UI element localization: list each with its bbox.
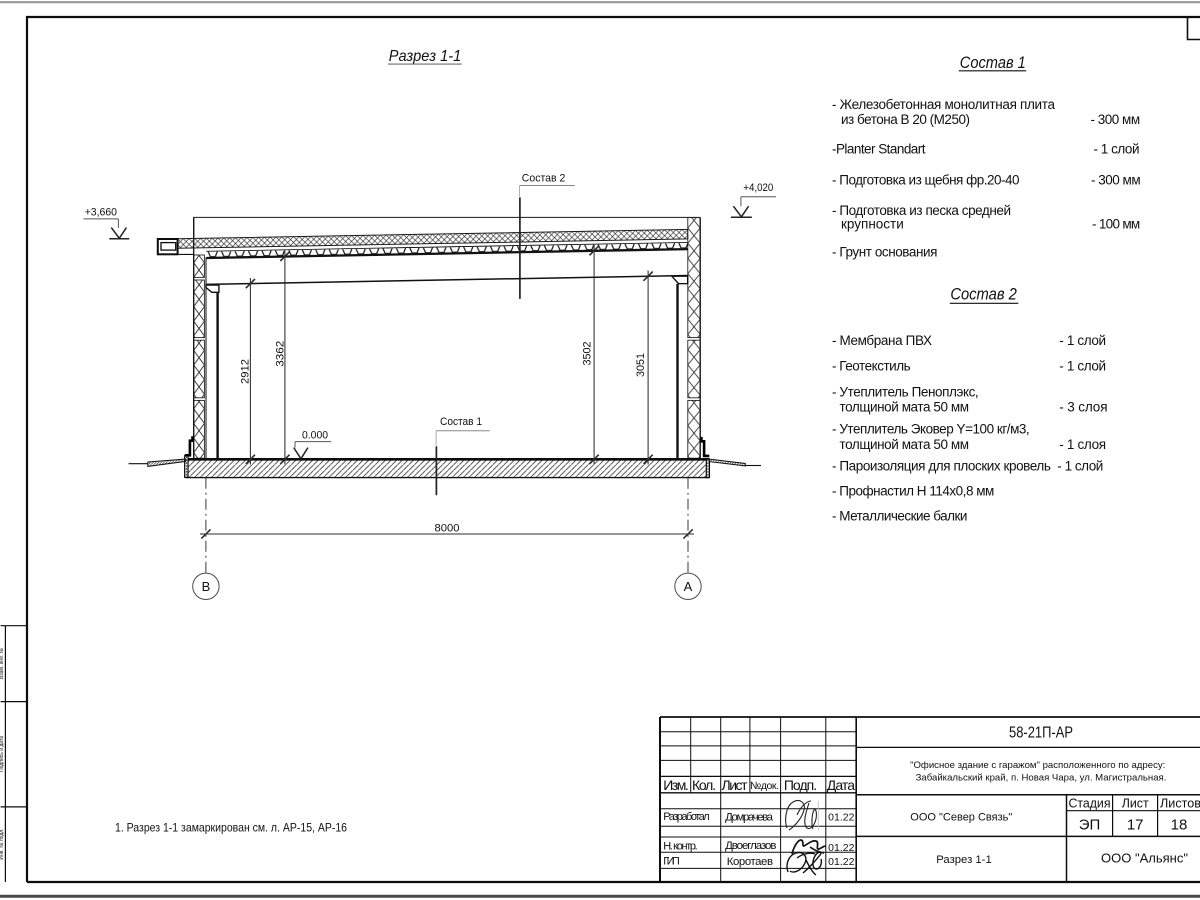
svg-text:- Мембрана ПВХ: - Мембрана ПВХ: [832, 333, 932, 348]
svg-text:- 3 слоя: - 3 слоя: [1059, 399, 1107, 414]
svg-text:1. Разрез 1-1 замаркирован см.: 1. Разрез 1-1 замаркирован см. л. АР-15,…: [115, 821, 347, 835]
svg-text:- 1 слой: - 1 слой: [1059, 333, 1106, 348]
svg-text:Кол.: Кол.: [692, 777, 716, 793]
svg-text:18: 18: [1171, 817, 1188, 834]
svg-text:ЭП: ЭП: [1079, 817, 1101, 834]
svg-text:из бетона В 20 (М250): из бетона В 20 (М250): [841, 112, 970, 127]
svg-text:ООО "Север Связь": ООО "Север Связь": [910, 811, 1012, 823]
svg-text:01.22: 01.22: [828, 842, 854, 854]
svg-text:толщиной мата 50 мм: толщиной мата 50 мм: [840, 399, 970, 414]
svg-text:Подп.: Подп.: [784, 777, 817, 793]
svg-text:Лист: Лист: [1122, 796, 1149, 811]
svg-text:Состав 2: Состав 2: [522, 172, 566, 184]
svg-text:Разрез 1-1: Разрез 1-1: [936, 854, 991, 866]
svg-text:+3,660: +3,660: [85, 206, 117, 218]
svg-text:- Пароизоляция для плоских кро: - Пароизоляция для плоских кровель: [832, 458, 1051, 473]
svg-text:- Профнастил Н 114х0,8 мм: - Профнастил Н 114х0,8 мм: [832, 484, 994, 499]
svg-text:58-21П-АР: 58-21П-АР: [1009, 725, 1073, 742]
svg-text:Н. контр.: Н. контр.: [663, 841, 698, 853]
svg-text:ГИП: ГИП: [663, 856, 680, 868]
svg-text:17: 17: [1127, 817, 1144, 834]
svg-text:Разрез 1-1: Разрез 1-1: [389, 48, 462, 65]
svg-text:- 1 слоя: - 1 слоя: [1059, 437, 1106, 452]
svg-text:Листов: Листов: [1160, 796, 1200, 811]
svg-text:Стадия: Стадия: [1069, 796, 1111, 811]
svg-text:Состав 2: Состав 2: [950, 285, 1017, 304]
svg-text:Лист: Лист: [722, 777, 749, 793]
svg-text:В: В: [202, 579, 211, 594]
svg-text:- Железобетонная монолитная п: - Железобетонная монолитная плита: [832, 97, 1055, 112]
svg-text:- Геотекстиль: - Геотекстиль: [832, 359, 911, 374]
svg-text:Забайкальский край, п. Новая Ч: Забайкальский край, п. Новая Чара, ул. М…: [916, 773, 1167, 784]
svg-text:- 100 мм: - 100 мм: [1092, 217, 1140, 232]
svg-text:Коротаев: Коротаев: [727, 856, 773, 868]
svg-text:- 1 слой: - 1 слой: [1059, 359, 1106, 374]
svg-text:толщиной мата 50 мм: толщиной мата 50 мм: [840, 437, 970, 452]
svg-text:Подпись и дата: Подпись и дата: [0, 736, 5, 772]
svg-text:2912: 2912: [240, 359, 252, 384]
svg-text:8000: 8000: [435, 522, 460, 534]
svg-text:+4,020: +4,020: [743, 182, 773, 194]
svg-text:Инв. № подл.: Инв. № подл.: [0, 828, 5, 859]
svg-text:01.22: 01.22: [828, 856, 854, 868]
svg-text:- Металлические балки: - Металлические балки: [832, 509, 967, 524]
svg-text:-Planter Standart: -Planter Standart: [832, 142, 926, 157]
svg-text:- Грунт основания: - Грунт основания: [832, 245, 937, 260]
svg-text:- Утеплитель Пеноплэкс,: - Утеплитель Пеноплэкс,: [832, 385, 979, 400]
svg-text:0.000: 0.000: [302, 430, 328, 442]
svg-text:3051: 3051: [635, 353, 647, 377]
svg-text:01.22: 01.22: [828, 812, 854, 824]
svg-text:- Подготовка из щебня фр.20-40: - Подготовка из щебня фр.20-40: [832, 173, 1020, 188]
svg-text:Двоеглазов: Двоеглазов: [725, 840, 776, 852]
svg-text:- 300 мм: - 300 мм: [1091, 112, 1141, 127]
svg-text:ООО "Альянс": ООО "Альянс": [1101, 851, 1188, 866]
svg-text:- 300 мм: - 300 мм: [1091, 173, 1141, 188]
svg-text:3502: 3502: [582, 342, 594, 366]
svg-text:Домрачева: Домрачева: [725, 811, 774, 823]
svg-text:Состав 1: Состав 1: [960, 53, 1026, 72]
svg-text:- 1 слой: - 1 слой: [1057, 458, 1103, 473]
svg-text:3362: 3362: [275, 341, 287, 367]
svg-text:А: А: [684, 579, 693, 594]
svg-text:Дата: Дата: [827, 777, 855, 793]
svg-text:№док.: №док.: [750, 780, 779, 792]
svg-text:Состав 1: Состав 1: [440, 416, 482, 428]
svg-text:Разработал: Разработал: [663, 811, 710, 823]
svg-text:Изм.: Изм.: [663, 777, 689, 793]
svg-text:- Утеплитель Эковер Y=100 кг/м: - Утеплитель Эковер Y=100 кг/м3,: [832, 422, 1030, 437]
svg-text:Взам. инв. №: Взам. инв. №: [0, 648, 5, 679]
svg-text:- 1 слой: - 1 слой: [1094, 142, 1140, 157]
svg-text:"Офисное здание с гаражом" рас: "Офисное здание с гаражом" расположенног…: [910, 760, 1165, 771]
svg-text:крупности: крупности: [841, 217, 904, 232]
